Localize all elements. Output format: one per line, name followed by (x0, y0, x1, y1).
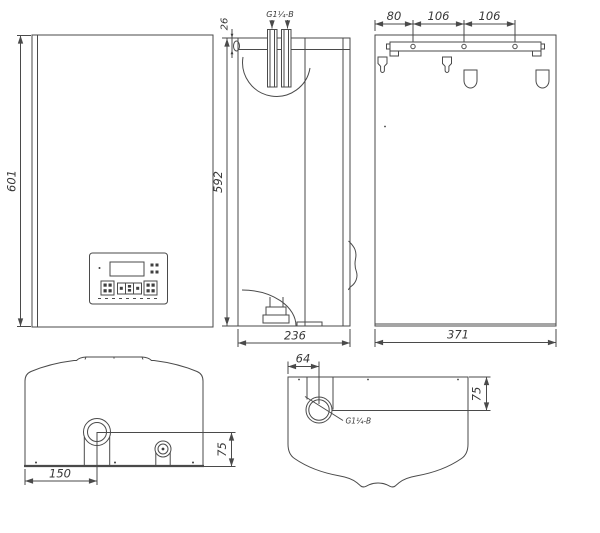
dim-side-depth: 236 (238, 329, 350, 348)
mode-button-right (144, 281, 157, 295)
screw-hole (192, 462, 194, 464)
dim-back-width-label: 371 (447, 328, 469, 342)
dim-side-pipe-thread-label: G1¼-B (266, 10, 293, 19)
screw-hole (457, 379, 459, 381)
top-view-outline (288, 377, 468, 487)
dim-bottom-pipe-x-label: 150 (49, 467, 71, 481)
mounting-bracket (387, 42, 545, 56)
screw-hole (298, 379, 300, 381)
dim-bracket-spacing2-label: 106 (479, 9, 501, 23)
back-view: 80 106 106 371 (375, 9, 556, 347)
status-led (99, 267, 101, 269)
back-vent-hole (384, 126, 386, 128)
dim-bracket-spacing1-label: 106 (428, 9, 450, 23)
dim-front-height: 601 (5, 36, 32, 327)
side-knob (234, 41, 240, 51)
back-view-outline (375, 35, 556, 326)
valve-detail (242, 290, 322, 326)
dim-top-pipe-y-label: 75 (470, 387, 484, 402)
keyhole-slots (378, 57, 549, 88)
control-panel (90, 253, 168, 304)
dim-top-pipe-y: 75 (332, 377, 491, 411)
screw-hole (367, 379, 369, 381)
dim-side-depth-label: 236 (284, 329, 306, 343)
dim-side-pipe-thread: G1¼-B (266, 10, 293, 29)
dim-side-height: 592 (211, 38, 238, 326)
top-view: G1¼-B 64 75 (288, 352, 491, 487)
dim-bracket-spacing: 80 106 106 (375, 9, 515, 42)
screw-hole (35, 462, 37, 464)
control-panel-frame (90, 253, 168, 304)
bottom-view: 150 75 (24, 357, 236, 485)
bracket-hole (411, 44, 415, 48)
hanging-slot (464, 70, 477, 88)
dim-bottom-pipe-y-label: 75 (215, 442, 229, 457)
bracket-hole (513, 44, 517, 48)
dim-top-pipe-thread-label: G1¼-B (346, 417, 372, 426)
screw-hole (114, 462, 116, 464)
control-panel-display (110, 262, 144, 276)
dim-side-top-offset-label: 26 (220, 18, 231, 31)
dim-bottom-pipe-y: 75 (97, 433, 236, 467)
indicator-icons (151, 264, 159, 274)
hanging-slot (536, 70, 549, 88)
keyhole-slot (378, 57, 387, 72)
bottom-view-outline (25, 357, 203, 466)
dim-side-height-label: 592 (211, 171, 225, 193)
adjust-buttons-center (118, 283, 142, 294)
dim-bracket-offset-label: 80 (387, 9, 402, 23)
dim-front-height-label: 601 (5, 170, 19, 192)
dim-top-pipe-x: 64 (288, 352, 319, 405)
mode-button-left (101, 281, 114, 295)
dim-back-width: 371 (375, 328, 556, 348)
bottom-drain-connection (155, 441, 171, 465)
boiler-dimension-drawing: 601 G1¼-B 26 (0, 0, 600, 533)
side-view-outline (238, 38, 350, 326)
bracket-hole (462, 44, 466, 48)
dim-top-pipe-x-label: 64 (296, 352, 311, 366)
front-view: 601 (5, 35, 214, 327)
keyhole-slot (443, 57, 452, 73)
side-view: G1¼-B 26 592 (211, 10, 357, 347)
